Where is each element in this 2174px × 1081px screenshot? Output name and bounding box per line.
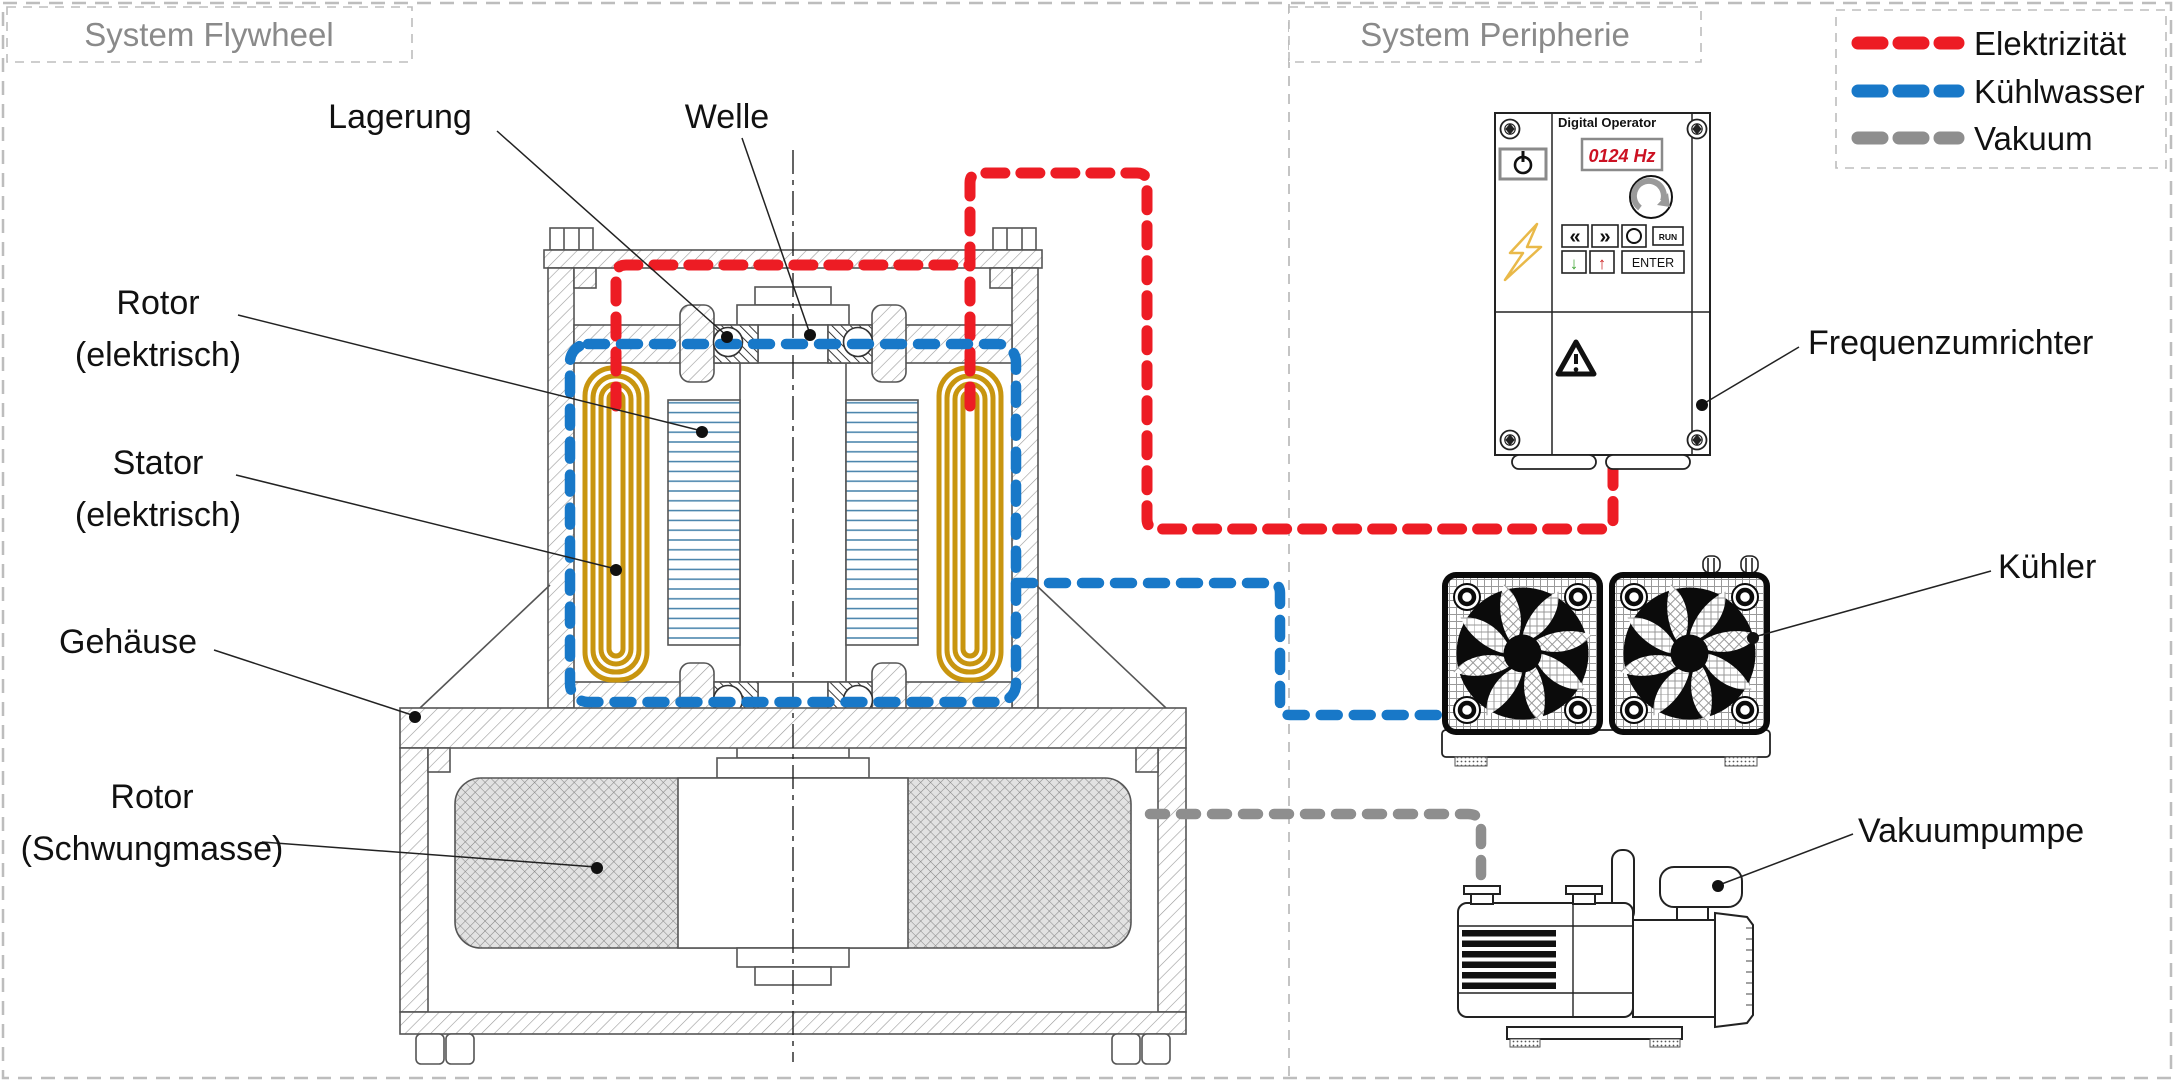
pump-base (1507, 1027, 1682, 1039)
inverter-header: Digital Operator (1558, 115, 1656, 130)
forward-button: » (1599, 226, 1610, 248)
legend-electricity-label: Elektrizität (1974, 25, 2126, 62)
rotor-lamination-right (846, 400, 918, 645)
label-stator-2: (elektrisch) (75, 496, 241, 534)
frequency-display: 0124 Hz (1582, 139, 1662, 170)
label-frequenzumrichter: Frequenzumrichter (1808, 324, 2093, 362)
coolingwater-line-to-cooler (1016, 583, 1444, 715)
cooler-foot (1725, 757, 1757, 766)
run-button: RUN (1659, 232, 1677, 242)
cooler-foot (1455, 757, 1487, 766)
pump-foot (1510, 1039, 1540, 1047)
up-arrow-button: ↑ (1598, 254, 1607, 273)
label-rotor-elektrisch-2: (elektrisch) (75, 336, 241, 374)
diagram-page: System Flywheel System Peripherie Elektr… (0, 0, 2174, 1081)
cooler-fittings (1703, 556, 1758, 573)
system-peripherie-title: System Peripherie (1360, 16, 1630, 53)
pump-inlet-port (1464, 886, 1602, 904)
screw-icon (1688, 120, 1707, 139)
power-button (1500, 149, 1546, 179)
back-button: « (1569, 226, 1580, 248)
rotation-icon (1630, 176, 1672, 218)
fan-icon (1442, 572, 1603, 735)
label-welle: Welle (685, 98, 769, 136)
stator-coil-right (939, 368, 1001, 680)
down-arrow-button: ↓ (1570, 254, 1579, 273)
label-gehaeuse: Gehäuse (59, 623, 197, 661)
label-lagerung: Lagerung (328, 98, 472, 136)
frequency-inverter-device: Digital Operator 0124 Hz « » RUN ↓ ↑ ENT… (1495, 113, 1710, 455)
pump-oil-box (1660, 867, 1742, 907)
fan-icon (1609, 572, 1770, 735)
label-vakuumpumpe: Vakuumpumpe (1858, 812, 2084, 850)
vacuum-line-to-pump (1150, 814, 1481, 884)
label-stator-1: Stator (113, 444, 204, 482)
section-title-flywheel: System Flywheel (7, 7, 412, 62)
screw-icon (1501, 120, 1520, 139)
vacuum-pump-device (1458, 850, 1753, 1047)
flywheel-system-diagram: System Flywheel System Peripherie Elektr… (0, 0, 2174, 1081)
pump-foot (1650, 1039, 1680, 1047)
enter-button: ENTER (1632, 256, 1674, 270)
pump-body (1458, 903, 1633, 1017)
component-labels: Lagerung Welle Rotor (elektrisch) Stator… (21, 98, 2097, 868)
cooler-device (1442, 556, 1770, 766)
legend-coolingwater-label: Kühlwasser (1974, 73, 2145, 110)
section-title-peripherie: System Peripherie (1289, 7, 1701, 62)
system-flywheel-title: System Flywheel (84, 16, 333, 53)
label-rotor-elektrisch-1: Rotor (116, 284, 199, 322)
frequency-value: 0124 Hz (1588, 146, 1655, 166)
label-kuehler: Kühler (1998, 548, 2096, 586)
legend-vacuum-label: Vakuum (1974, 120, 2093, 157)
screw-icon (1501, 431, 1520, 450)
screw-icon (1688, 431, 1707, 450)
pump-endcap (1715, 913, 1753, 1027)
pump-motor (1633, 920, 1715, 1017)
inverter-feet (1512, 455, 1690, 469)
label-rotor-schwungmasse-1: Rotor (110, 778, 193, 816)
legend: Elektrizität Kühlwasser Vakuum (1836, 10, 2166, 168)
label-rotor-schwungmasse-2: (Schwungmasse) (21, 830, 284, 868)
